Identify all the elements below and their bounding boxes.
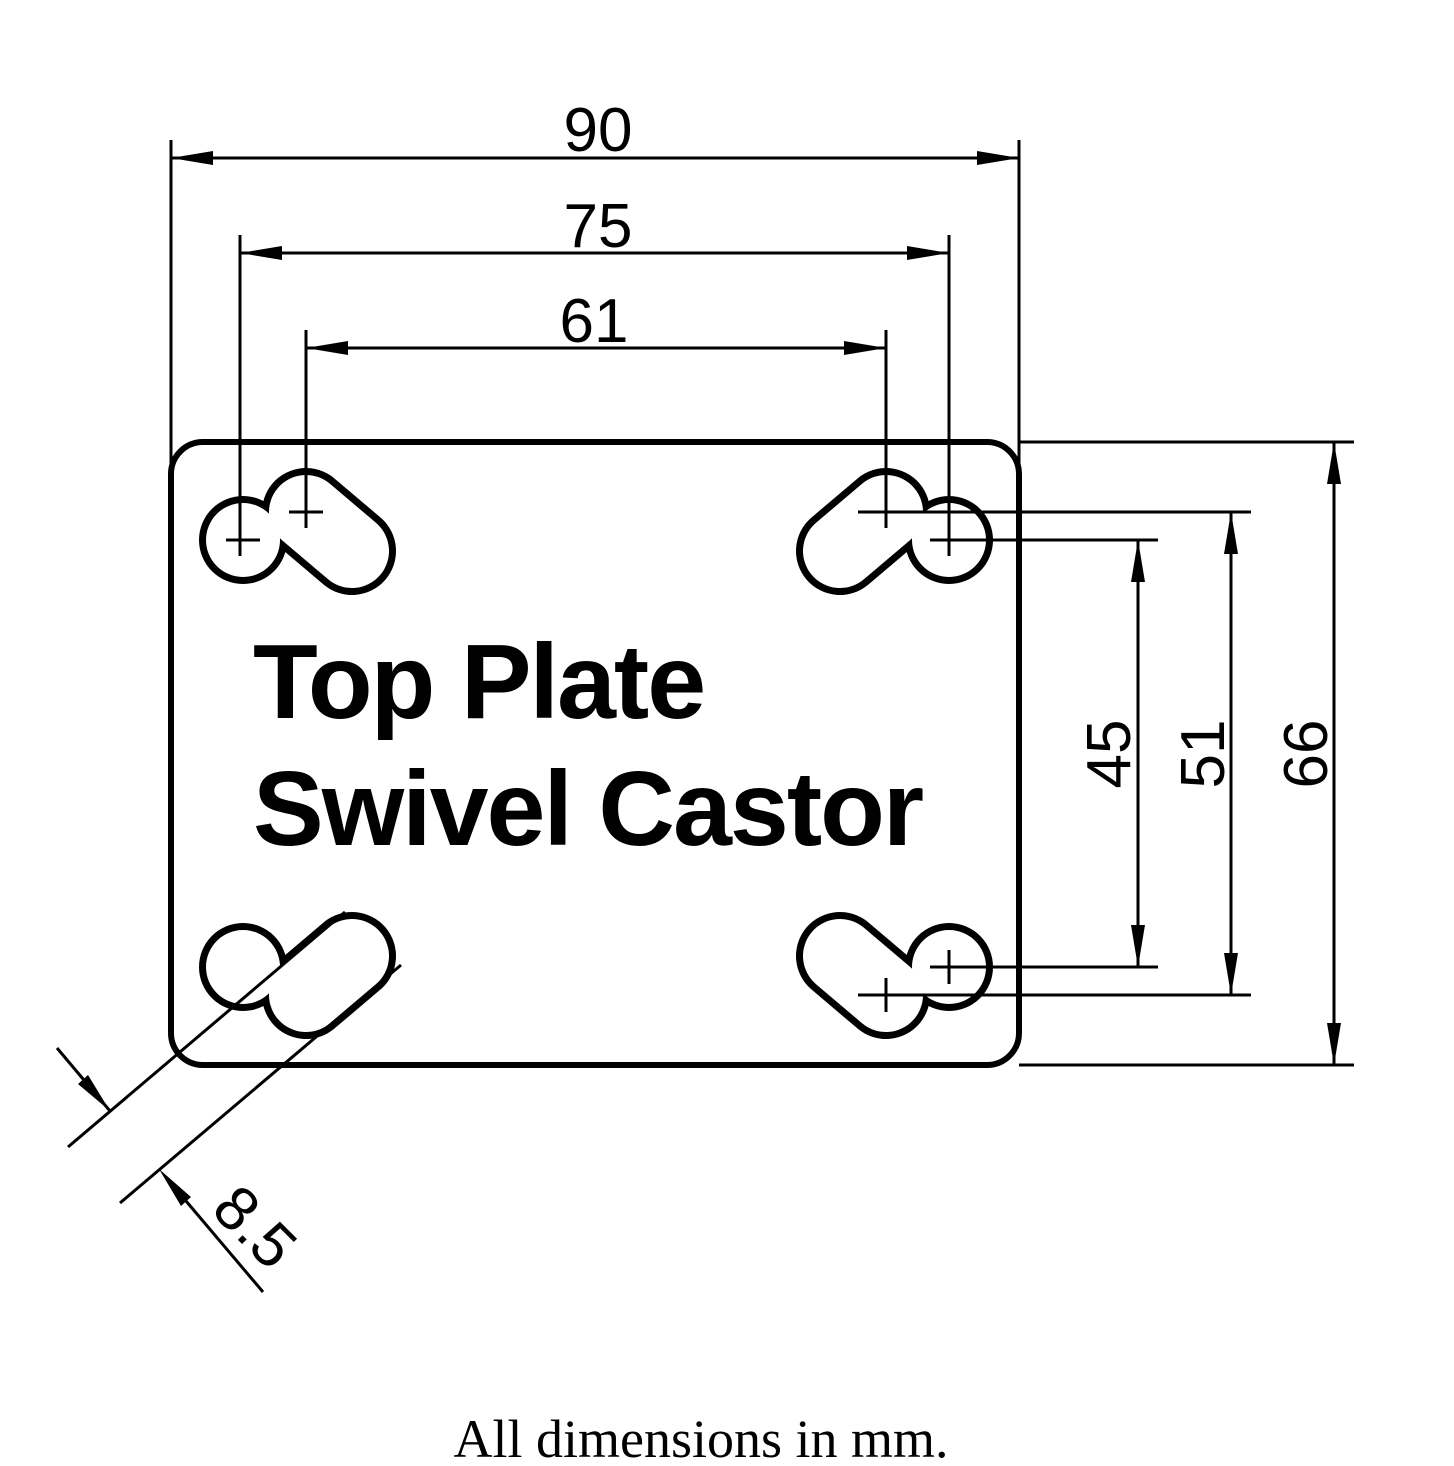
- dim-label-66: 66: [1272, 720, 1341, 789]
- arrowhead-slot-width-lower: [159, 1169, 191, 1206]
- arrowhead-45-top: [1131, 540, 1145, 582]
- mounting-slot-top-left: [243, 512, 352, 551]
- arrowhead-66-top: [1327, 442, 1341, 484]
- title-line-1: Top Plate: [253, 623, 704, 741]
- title-line-2: Swivel Castor: [253, 750, 923, 868]
- dim-label-51: 51: [1169, 720, 1238, 789]
- mounting-slot-top-right: [840, 512, 949, 551]
- dim-label-61: 61: [560, 287, 629, 356]
- mounting-slot-bottom-left: [243, 956, 352, 995]
- arrowhead-75-left: [240, 246, 282, 260]
- arrowhead-51-top: [1224, 512, 1238, 554]
- technical-drawing-page: 90 75 61 45 51 66 8.5 Top Plate Swivel C…: [0, 0, 1454, 1466]
- castor-plate-drawing: 90 75 61 45 51 66 8.5 Top Plate Swivel C…: [0, 0, 1454, 1466]
- arrowhead-45-bottom: [1131, 925, 1145, 967]
- arrowhead-90-left: [171, 151, 213, 165]
- units-note: All dimensions in mm.: [453, 1409, 948, 1466]
- arrowhead-66-bottom: [1327, 1023, 1341, 1065]
- arrowhead-slot-width-upper: [78, 1075, 110, 1111]
- mounting-slot-bottom-right: [840, 956, 949, 995]
- arrowhead-61-right: [844, 341, 886, 355]
- dim-label-75: 75: [564, 192, 633, 261]
- dim-label-slot-width: 8.5: [200, 1173, 310, 1283]
- arrowhead-51-bottom: [1224, 953, 1238, 995]
- arrowhead-90-right: [977, 151, 1019, 165]
- dim-label-90: 90: [564, 96, 633, 165]
- dim-label-45: 45: [1075, 720, 1144, 789]
- arrowhead-75-right: [907, 246, 949, 260]
- arrowhead-61-left: [306, 341, 348, 355]
